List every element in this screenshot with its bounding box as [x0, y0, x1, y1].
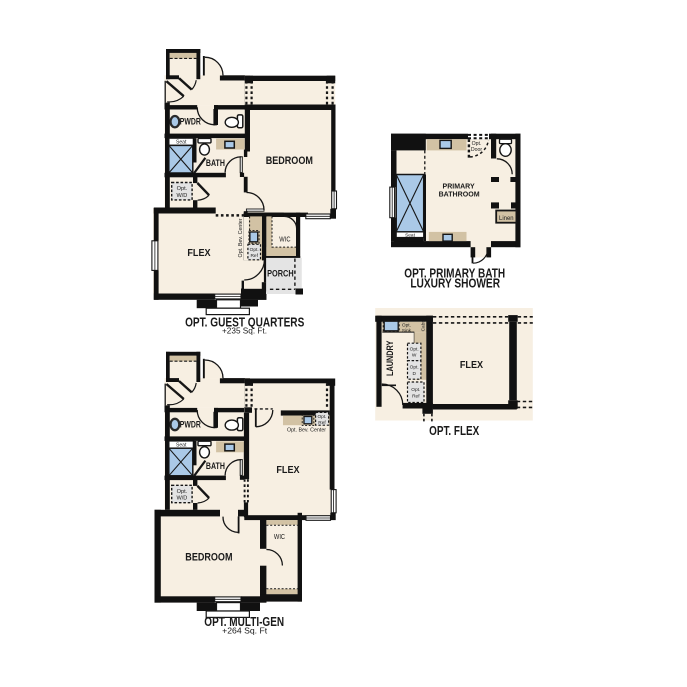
svg-text:Door: Door [471, 147, 483, 153]
svg-text:Sink: Sink [402, 328, 412, 334]
svg-text:Opt.: Opt. [317, 414, 326, 420]
svg-text:Linen: Linen [499, 215, 514, 222]
svg-text:PRIMARY: PRIMARY [443, 184, 475, 191]
svg-text:Opt.: Opt. [472, 141, 482, 147]
svg-text:W/D: W/D [176, 496, 187, 502]
svg-text:FLEX: FLEX [187, 248, 210, 259]
svg-text:WIC: WIC [279, 236, 290, 243]
svg-text:FLEX: FLEX [460, 360, 483, 371]
svg-text:BEDROOM: BEDROOM [185, 551, 232, 563]
svg-text:Ref: Ref [318, 420, 326, 426]
svg-text:W/D: W/D [176, 193, 187, 199]
svg-text:Ref: Ref [250, 253, 258, 259]
svg-text:WIC: WIC [274, 534, 285, 541]
svg-text:+235 Sq. Ft.: +235 Sq. Ft. [222, 327, 267, 336]
svg-text:Opt. Bev. Center: Opt. Bev. Center [238, 218, 244, 257]
svg-text:Opt.: Opt. [177, 186, 188, 192]
svg-text:Opt. Bev. Center: Opt. Bev. Center [287, 428, 326, 434]
svg-text:BATH: BATH [206, 158, 225, 168]
svg-text:Opt.: Opt. [410, 365, 419, 371]
svg-text:Opt.: Opt. [250, 247, 259, 253]
svg-text:BATH: BATH [206, 461, 225, 471]
svg-text:Opt.: Opt. [402, 323, 411, 329]
svg-text:D: D [412, 371, 416, 377]
svg-text:Opt.: Opt. [411, 387, 420, 393]
svg-text:Opt.: Opt. [177, 489, 188, 495]
svg-text:LUXURY SHOWER: LUXURY SHOWER [410, 277, 500, 291]
svg-text:BATHROOM: BATHROOM [439, 192, 480, 199]
svg-text:PWDR: PWDR [180, 117, 201, 127]
svg-text:W: W [412, 353, 417, 359]
svg-text:PORCH: PORCH [267, 269, 294, 280]
svg-text:Ref: Ref [412, 393, 420, 399]
svg-text:OPT. FLEX: OPT. FLEX [429, 424, 480, 438]
svg-text:FLEX: FLEX [276, 465, 299, 476]
svg-text:+264 Sq. Ft: +264 Sq. Ft [222, 626, 268, 635]
svg-text:Opt.: Opt. [410, 346, 419, 352]
svg-text:LAUNDRY: LAUNDRY [385, 341, 395, 376]
svg-text:PWDR: PWDR [180, 419, 201, 429]
svg-text:BEDROOM: BEDROOM [266, 155, 313, 167]
